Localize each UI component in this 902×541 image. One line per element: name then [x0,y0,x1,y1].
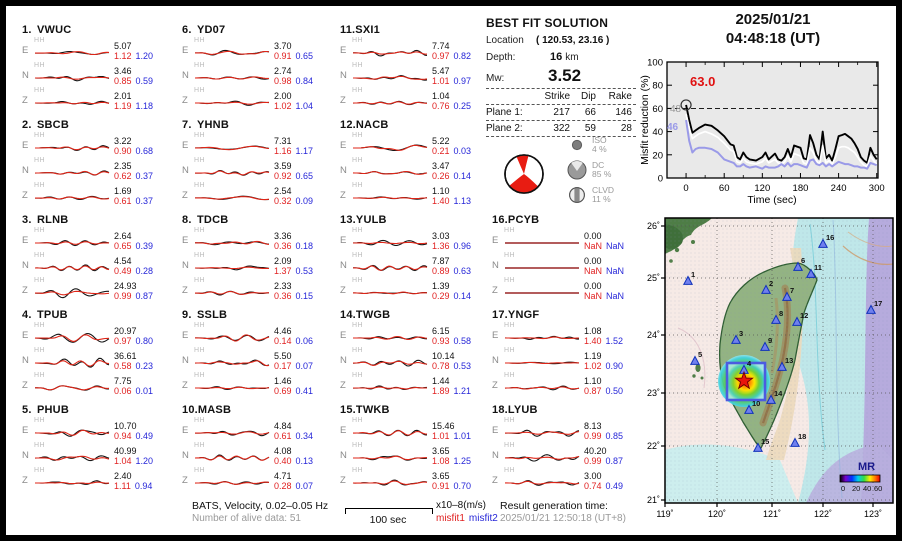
trace-values: 36.610.580.23 [114,351,153,371]
misfit2-value: 0.97 [454,76,472,86]
mr-colorbar [840,475,880,482]
peak-amplitude: 1.19 [584,351,623,361]
component-label: Z [182,475,193,486]
component-label: N [22,450,33,461]
waveform-row-Z: ZHH1.441.891.21 [334,373,486,398]
component-label: E [492,235,503,246]
misfit1-value: 0.40 [274,456,292,466]
channel-label: HH [352,277,363,284]
component-label: N [182,70,193,81]
station-header: 5.PHUB [16,404,168,418]
trace-values: 2.401.110.94 [114,471,152,491]
misfit1-value: 0.17 [274,361,292,371]
trace-values: 1.441.891.21 [432,376,471,396]
trace-values: 2.740.980.84 [274,66,313,86]
trace-values: 0.00NaNNaN [584,281,624,301]
trace-values: 3.700.910.65 [274,41,313,61]
waveform-trace: HH [33,323,111,348]
component-label: Z [22,285,33,296]
waveform-trace: HH [351,228,429,253]
station-marker-label: 2 [769,279,773,288]
component-label: E [22,235,33,246]
misfit1-value: 0.74 [584,481,602,491]
clvd-icon [566,186,588,204]
misfit1-value: 1.02 [274,101,292,111]
peak-amplitude: 3.00 [584,471,623,481]
peak-amplitude: 4.71 [274,471,313,481]
station-header: 7.YHNB [176,119,328,133]
station-code: NACB [356,119,389,131]
misfit1-value: 0.93 [432,336,450,346]
misfit1-value: 0.49 [114,266,132,276]
trace-values: 3.650.910.70 [432,471,471,491]
misfit2-value: 0.23 [136,361,154,371]
component-label: Z [22,190,33,201]
misfit2-value: 0.84 [296,76,314,86]
waveform-row-E: EHH3.360.360.18 [176,228,328,253]
waveform-trace: HH [33,468,111,493]
peak-amplitude: 20.97 [114,326,153,336]
depth-unit: km [565,52,578,63]
waveform-trace: HH [503,348,581,373]
misfit1-value: 1.89 [432,386,450,396]
component-label: E [340,425,351,436]
waveform-row-N: NHH2.350.620.37 [16,158,168,183]
station-block-TWKB: 15.TWKBEHH15.461.011.01NHH3.651.081.25ZH… [334,404,486,499]
channel-label: HH [352,467,363,474]
station-header: 3.RLNB [16,214,168,228]
station-marker-label: 5 [698,350,702,359]
channel-label: HH [194,372,205,379]
waveform-row-E: EHH2.640.650.39 [16,228,168,253]
station-code: SSLB [197,309,227,321]
station-block-SXI1: 11.SXI1EHH7.740.970.82NHH5.471.010.97ZHH… [334,24,486,119]
waveform-column-2: 6.YD07EHH3.700.910.65NHH2.740.980.84ZHH2… [176,24,328,504]
waveform-trace: HH [193,133,271,158]
focal-mechanism-beachball-icon [502,152,546,199]
station-block-PCYB: 16.PCYBEHH0.00NaNNaNNHH0.00NaNNaNZHH0.00… [486,214,638,309]
component-label: Z [182,380,193,391]
misfit1-value: NaN [584,241,602,251]
component-label: Z [340,475,351,486]
component-label: E [340,140,351,151]
waveform-trace: HH [33,278,111,303]
misfit2-value: 0.03 [454,146,472,156]
waveform-row-N: NHH3.651.081.25 [334,443,486,468]
waveform-trace: HH [33,443,111,468]
waveform-row-Z: ZHH3.000.740.49 [486,468,638,493]
peak-amplitude: 3.22 [114,136,153,146]
station-header: 11.SXI1 [334,24,486,38]
waveform-row-Z: ZHH3.650.910.70 [334,468,486,493]
station-number: 17. [492,309,508,322]
misfit2-value: 0.53 [454,361,472,371]
waveform-trace: HH [351,373,429,398]
waveform-trace: HH [351,183,429,208]
trace-values: 5.471.010.97 [432,66,471,86]
waveform-trace: HH [351,158,429,183]
waveform-row-N: NHH5.471.010.97 [334,63,486,88]
colorbar-tick: 20 [852,484,860,493]
waveform-row-N: NHH36.610.580.23 [16,348,168,373]
station-number: 9. [182,309,197,322]
map-lat-label: 26˚ [647,221,660,231]
peak-amplitude: 3.70 [274,41,313,51]
channel-label: HH [34,227,45,234]
waveform-row-Z: ZHH1.390.290.14 [334,278,486,303]
channel-label: HH [504,467,515,474]
trace-values: 4.080.400.13 [274,446,313,466]
peak-amplitude: 2.35 [114,161,153,171]
peak-amplitude: 8.13 [584,421,623,431]
trace-values: 8.130.990.85 [584,421,623,441]
waveform-row-N: NHH5.500.170.07 [176,348,328,373]
trace-values: 10.700.940.49 [114,421,153,441]
waveform-trace: HH [503,323,581,348]
station-header: 9.SSLB [176,309,328,323]
waveform-row-Z: ZHH24.930.990.87 [16,278,168,303]
station-header: 10.MASB [176,404,328,418]
component-label: E [340,235,351,246]
peak-amplitude: 1.39 [432,281,471,291]
misfit2-value: 1.18 [136,101,154,111]
channel-label: HH [34,182,45,189]
result-time-label: Result generation time: [500,500,608,512]
waveform-row-Z: ZHH1.100.870.50 [486,373,638,398]
misfit2-value: 0.49 [606,481,624,491]
waveform-row-E: EHH4.840.610.34 [176,418,328,443]
misfit1-value: 1.11 [114,481,131,491]
channel-label: HH [194,182,205,189]
waveform-row-E: EHH3.220.900.68 [16,133,168,158]
channel-label: HH [194,227,205,234]
map-lat-label: 21˚ [647,495,660,505]
peak-amplitude: 4.08 [274,446,313,456]
waveform-trace: HH [193,418,271,443]
station-number: 18. [492,404,508,417]
nodal-plane-table-header: Strike Dip Rake [486,89,636,105]
misfit2-value: 0.14 [454,171,472,181]
waveform-trace: HH [193,443,271,468]
waveform-trace: HH [193,468,271,493]
component-label: Z [182,95,193,106]
station-code: YNGF [508,309,539,321]
misfit2-value: 0.59 [136,76,154,86]
map-canvas: 123456789101112131415161718MR0204060 [665,218,893,503]
waveform-row-N: NHH40.991.041.20 [16,443,168,468]
filter-info: BATS, Velocity, 0.02–0.05 Hz [192,500,328,512]
map-lat-label: 25˚ [647,273,660,283]
waveform-trace: HH [351,348,429,373]
station-marker-label: 18 [798,432,806,441]
station-header: 14.TWGB [334,309,486,323]
station-code: SBCB [37,119,69,131]
waveform-trace: HH [33,373,111,398]
result-time-value: 2025/01/21 12:50:18 (UT+8) [500,513,626,524]
misfit1-value: 1.40 [432,196,450,206]
station-number: 11. [340,24,355,37]
waveform-row-Z: ZHH1.101.401.13 [334,183,486,208]
component-label: Z [492,285,503,296]
svg-text:0: 0 [658,174,663,185]
station-code: TWKB [356,404,390,416]
waveform-row-E: EHH5.220.210.03 [334,133,486,158]
peak-amplitude: 7.31 [274,136,313,146]
waveform-row-N: NHH4.540.490.28 [16,253,168,278]
waveform-trace: HH [503,418,581,443]
station-block-NACB: 12.NACBEHH5.220.210.03NHH3.470.260.14ZHH… [334,119,486,214]
misfit2-value: 0.07 [296,481,314,491]
waveform-row-E: EHH20.970.970.80 [16,323,168,348]
component-label: E [492,425,503,436]
misfit2-legend: misfit2 [469,513,498,524]
plane-2-row: Plane 2: 322 59 28 [486,121,636,137]
channel-label: HH [194,347,205,354]
channel-label: HH [194,417,205,424]
channel-label: HH [352,227,363,234]
waveform-trace: HH [503,373,581,398]
station-marker-label: 14 [774,389,783,398]
peak-amplitude: 2.74 [274,66,313,76]
svg-text:240: 240 [831,183,847,194]
channel-label: HH [34,37,45,44]
misfit2-value: 0.90 [606,361,624,371]
component-label: E [492,330,503,341]
waveform-trace: HH [33,158,111,183]
station-header: 12.NACB [334,119,486,133]
svg-text:80: 80 [652,81,663,92]
channel-label: HH [34,372,45,379]
station-block-LYUB: 18.LYUBEHH8.130.990.85NHH40.200.990.87ZH… [486,404,638,499]
misfit2-value: 1.20 [136,51,154,61]
station-header: 13.YULB [334,214,486,228]
station-marker-label: 7 [790,286,794,295]
misfit2-value: 1.01 [454,431,472,441]
misfit2-value: 0.80 [136,336,154,346]
channel-label: HH [504,252,515,259]
station-header: 4.TPUB [16,309,168,323]
col-rake: Rake [596,91,632,102]
mw-value: 3.52 [548,68,581,84]
station-number: 15. [340,404,356,417]
misfit2-value: 0.18 [296,241,314,251]
peak-amplitude: 7.75 [114,376,153,386]
peak-amplitude: 10.70 [114,421,153,431]
dc-row: DC 85 % [566,159,614,181]
misfit1-value: 0.26 [432,171,450,181]
component-label: N [340,450,351,461]
waveform-row-E: EHH3.700.910.65 [176,38,328,63]
station-code: SXI1 [355,24,380,36]
trace-values: 1.101.401.13 [432,186,471,206]
waveform-row-E: EHH10.700.940.49 [16,418,168,443]
waveform-row-N: NHH1.191.020.90 [486,348,638,373]
trace-values: 1.460.690.41 [274,376,313,396]
component-label: Z [492,475,503,486]
misfit1-value: 0.61 [114,196,132,206]
misfit-reduction-plot: 02040608010006012018024030063.04846Misfi… [634,54,896,206]
misfit1-value: 0.98 [274,76,292,86]
trace-values: 15.461.011.01 [432,421,471,441]
waveform-trace: HH [503,228,581,253]
channel-label: HH [34,157,45,164]
waveform-row-Z: ZHH1.040.760.25 [334,88,486,113]
location-label: Location [486,35,536,46]
waveform-trace: HH [193,348,271,373]
trace-values: 3.360.360.18 [274,231,313,251]
channel-label: HH [34,322,45,329]
channel-label: HH [504,322,515,329]
station-block-YD07: 6.YD07EHH3.700.910.65NHH2.740.980.84ZHH2… [176,24,328,119]
station-marker-label: 11 [814,263,822,272]
component-label: N [340,70,351,81]
blue-misfit-label: 46 [667,122,679,133]
station-number: 10. [182,404,198,417]
misfit2-value: 0.13 [296,456,314,466]
component-label: N [492,355,503,366]
channel-label: HH [352,372,363,379]
peak-amplitude: 1.08 [584,326,623,336]
misfit1-value: 1.12 [114,51,132,61]
waveform-row-Z: ZHH0.00NaNNaN [486,278,638,303]
waveform-trace: HH [351,323,429,348]
trace-values: 3.460.850.59 [114,66,153,86]
amplitude-unit: x10–8(m/s) [436,500,486,511]
waveform-trace: HH [33,253,111,278]
peak-amplitude: 0.00 [584,256,624,266]
peak-amplitude: 1.10 [584,376,623,386]
station-marker-label: 13 [785,356,793,365]
component-label: N [22,355,33,366]
misfit1-value: 0.91 [274,51,292,61]
misfit1-value: 0.94 [114,431,132,441]
misfit2-value: 0.50 [606,386,624,396]
peak-amplitude: 3.47 [432,161,471,171]
misfit1-value: 1.02 [584,361,602,371]
channel-label: HH [352,417,363,424]
peak-amplitude: 1.04 [432,91,471,101]
station-header: 15.TWKB [334,404,486,418]
misfit2-value: 1.25 [454,456,472,466]
trace-values: 1.081.401.52 [584,326,623,346]
waveform-row-Z: ZHH1.690.610.37 [16,183,168,208]
component-label: N [182,450,193,461]
misfit1-value: 1.40 [584,336,602,346]
peak-amplitude: 7.87 [432,256,471,266]
misfit1-value: 0.87 [584,386,602,396]
channel-label: HH [194,157,205,164]
misfit1-value: 1.37 [274,266,292,276]
waveform-row-E: EHH5.071.121.20 [16,38,168,63]
station-header: 2.SBCB [16,119,168,133]
component-label: Z [340,380,351,391]
misfit1-value: 0.85 [114,76,132,86]
plane-1-row: Plane 1: 217 66 146 [486,105,636,121]
iso-row: ISO 4 % [566,136,614,154]
waveform-row-N: NHH3.470.260.14 [334,158,486,183]
peak-amplitude: 1.44 [432,376,471,386]
waveform-trace: HH [193,228,271,253]
trace-values: 5.071.121.20 [114,41,153,61]
channel-label: HH [34,417,45,424]
trace-values: 0.00NaNNaN [584,231,624,251]
trace-values: 4.840.610.34 [274,421,313,441]
channel-label: HH [352,252,363,259]
svg-text:40: 40 [652,127,663,138]
component-label: Z [340,285,351,296]
moment-tensor-decomposition: ISO 4 % DC 85 % [566,136,614,209]
peak-amplitude: 3.59 [274,161,313,171]
peak-amplitude: 5.07 [114,41,153,51]
station-number: 13. [340,214,356,227]
component-label: E [22,425,33,436]
trace-values: 2.350.620.37 [114,161,153,181]
component-label: E [182,45,193,56]
component-label: N [22,260,33,271]
station-block-YHNB: 7.YHNBEHH7.311.161.17NHH3.590.920.65ZHH2… [176,119,328,214]
misfit1-value: 0.92 [274,171,292,181]
svg-text:0: 0 [683,183,688,194]
station-block-VWUC: 1.VWUCEHH5.071.121.20NHH3.460.850.59ZHH2… [16,24,168,119]
best-misfit-label: 63.0 [690,74,715,89]
station-number: 7. [182,119,197,132]
component-label: N [182,355,193,366]
channel-label: HH [352,347,363,354]
channel-label: HH [194,252,205,259]
misfit2-value: 0.15 [296,291,314,301]
waveform-trace: HH [33,63,111,88]
component-label: N [182,260,193,271]
channel-label: HH [194,37,205,44]
trace-values: 4.460.140.06 [274,326,313,346]
col-dip: Dip [570,91,596,102]
component-label: N [22,165,33,176]
waveform-row-E: EHH1.081.401.52 [486,323,638,348]
time-scale-label: 100 sec [345,514,431,526]
waveform-trace: HH [33,418,111,443]
misfit1-value: 0.14 [274,336,292,346]
misfit2-value: 0.41 [296,386,314,396]
station-marker-label: 17 [874,299,882,308]
misfit1-value: 0.91 [432,481,450,491]
channel-label: HH [504,372,515,379]
svg-text:100: 100 [647,58,663,69]
colorbar-tick: 40 [863,484,871,493]
misfit2-value: 0.09 [296,196,314,206]
misfit1-value: 0.61 [274,431,292,441]
misfit1-value: 1.36 [432,241,450,251]
station-number: 1. [22,24,37,37]
misfit1-value: 0.99 [584,431,602,441]
peak-amplitude: 4.46 [274,326,313,336]
misfit1-value: 0.89 [432,266,450,276]
waveform-row-N: NHH2.091.370.53 [176,253,328,278]
misfit1-value: 1.19 [114,101,132,111]
channel-label: HH [34,132,45,139]
waveform-row-Z: ZHH2.330.360.15 [176,278,328,303]
peak-amplitude: 2.09 [274,256,313,266]
component-label: E [340,45,351,56]
misfit1-value: 0.65 [114,241,132,251]
trace-values: 2.001.021.04 [274,91,313,111]
misfit2-value: 0.28 [136,266,154,276]
taiwan-station-map: 123456789101112131415161718MR020406026˚2… [638,208,902,541]
misfit1-legend: misfit1 [436,513,465,524]
station-code: LYUB [508,404,538,416]
misfit2-value: 0.37 [136,171,154,181]
misfit2-value: 0.07 [296,361,314,371]
misfit1-value: 1.04 [114,456,132,466]
